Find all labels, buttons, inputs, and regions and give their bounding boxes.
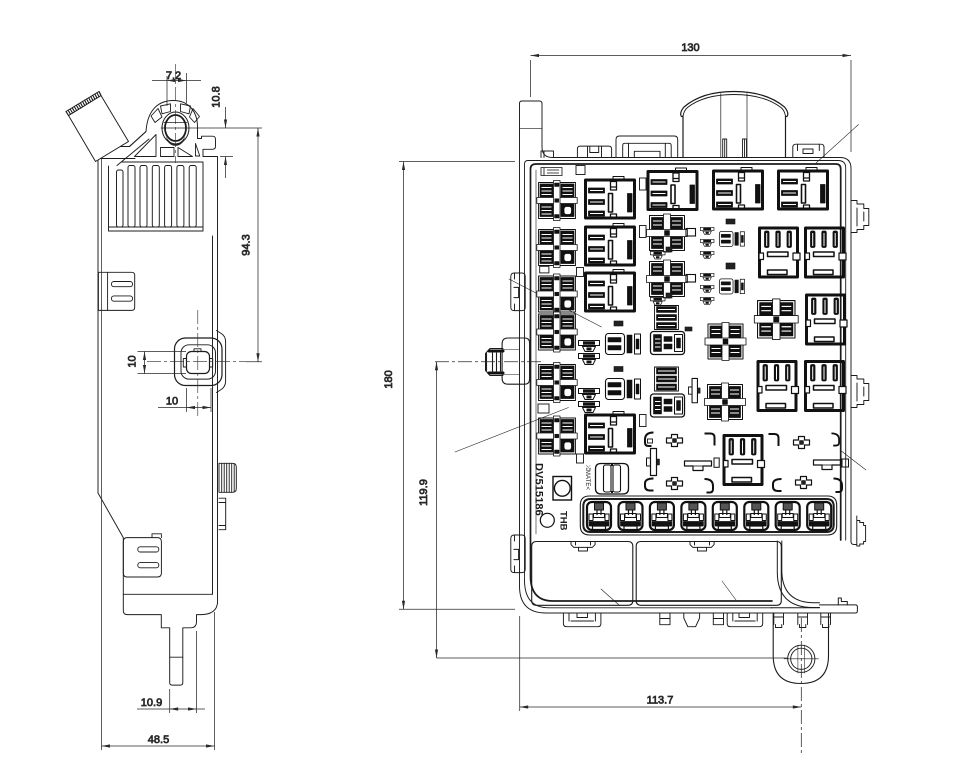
svg-text:10: 10 bbox=[127, 355, 139, 367]
svg-text:DV515186: DV515186 bbox=[533, 463, 545, 516]
svg-text:180: 180 bbox=[383, 370, 395, 388]
svg-text:119.9: 119.9 bbox=[418, 479, 430, 506]
svg-text:94.3: 94.3 bbox=[241, 234, 253, 255]
svg-text:10.8: 10.8 bbox=[211, 86, 223, 107]
svg-text:10: 10 bbox=[166, 396, 178, 408]
svg-text:⤮MATE<: ⤮MATE< bbox=[584, 465, 591, 491]
svg-text:THB: THB bbox=[558, 511, 569, 531]
svg-text:7.2: 7.2 bbox=[166, 70, 181, 82]
svg-text:48.5: 48.5 bbox=[148, 734, 169, 746]
svg-text:10.9: 10.9 bbox=[141, 697, 162, 709]
svg-text:113.7: 113.7 bbox=[647, 695, 674, 707]
svg-text:130: 130 bbox=[681, 42, 699, 54]
